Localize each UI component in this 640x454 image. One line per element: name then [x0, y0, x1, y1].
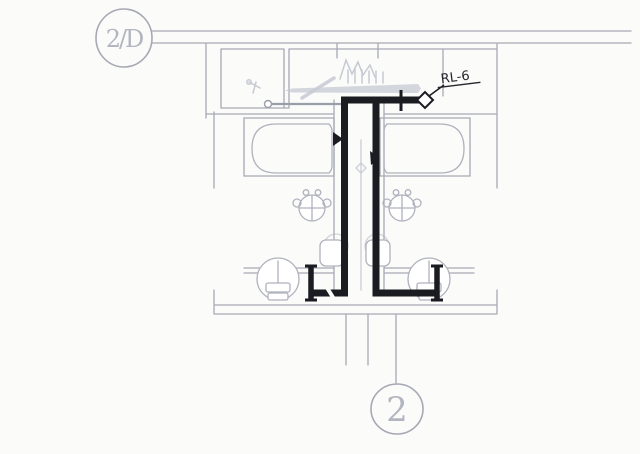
scanned-plan-page: RL-6 2/D 2	[0, 0, 640, 454]
toilet-left	[257, 258, 299, 300]
cistern-left	[320, 240, 344, 266]
toilet-seat	[266, 283, 290, 292]
plan-drawing: RL-6 2/D 2	[0, 0, 640, 454]
toilet-seat	[268, 293, 288, 300]
paper-background	[0, 0, 640, 454]
section-bubble-text: 2	[386, 390, 408, 430]
supply-pipe-cap	[265, 101, 272, 108]
grid-bubble-text: 2/D	[106, 25, 143, 53]
